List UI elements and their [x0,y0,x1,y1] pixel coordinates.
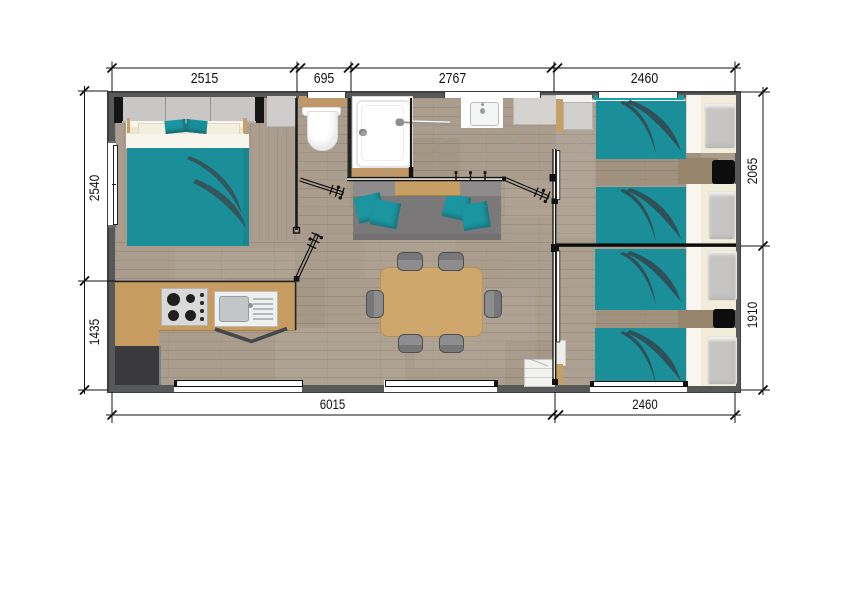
svg-text:1435: 1435 [86,319,102,345]
svg-text:2767: 2767 [439,70,466,86]
svg-text:2460: 2460 [632,397,658,412]
svg-text:2515: 2515 [191,70,218,86]
svg-text:2065: 2065 [744,158,760,184]
svg-text:1910: 1910 [744,302,760,328]
svg-text:2460: 2460 [631,70,658,86]
svg-text:2540: 2540 [86,175,102,201]
svg-text:6015: 6015 [320,397,346,412]
svg-text:695: 695 [314,70,335,86]
